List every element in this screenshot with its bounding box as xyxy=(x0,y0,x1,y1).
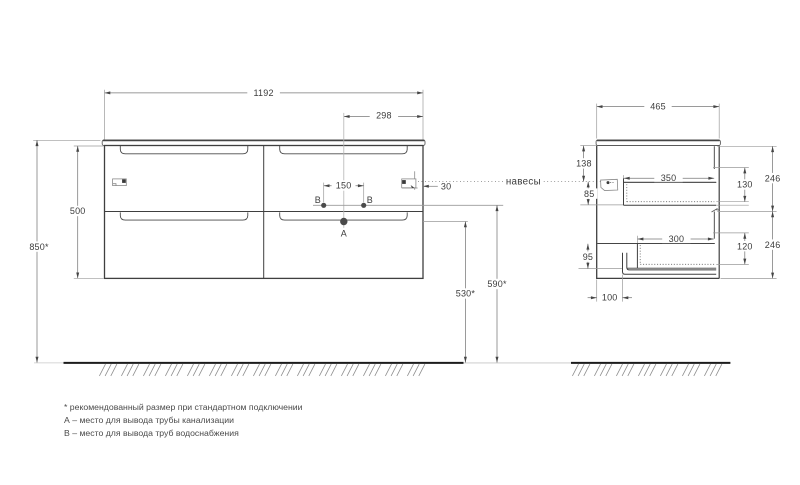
svg-text:A: A xyxy=(341,228,347,238)
svg-text:120: 120 xyxy=(737,241,753,251)
svg-text:130: 130 xyxy=(737,180,753,190)
svg-text:500: 500 xyxy=(70,206,86,216)
svg-text:350: 350 xyxy=(661,173,677,183)
svg-text:B: B xyxy=(367,195,373,205)
svg-text:* рекомендованный размер при с: * рекомендованный размер при стандартном… xyxy=(64,402,303,412)
svg-text:100: 100 xyxy=(602,293,618,303)
svg-text:138: 138 xyxy=(576,159,592,169)
svg-text:246: 246 xyxy=(765,240,781,250)
svg-text:530*: 530* xyxy=(456,289,476,299)
svg-text:95: 95 xyxy=(583,252,593,262)
svg-text:30: 30 xyxy=(441,181,451,191)
svg-text:300: 300 xyxy=(669,234,685,244)
svg-text:850*: 850* xyxy=(29,242,49,252)
svg-text:B: B xyxy=(315,195,321,205)
svg-text:298: 298 xyxy=(376,110,392,120)
svg-text:465: 465 xyxy=(650,102,666,112)
svg-text:А – место для вывода трубы кан: А – место для вывода трубы канализации xyxy=(64,415,234,425)
svg-text:1192: 1192 xyxy=(254,88,274,98)
svg-text:В – место для вывода труб водо: В – место для вывода труб водоснабжения xyxy=(64,428,239,438)
svg-text:246: 246 xyxy=(765,173,781,183)
svg-text:150: 150 xyxy=(336,181,352,191)
svg-text:навесы: навесы xyxy=(506,177,541,188)
svg-text:590*: 590* xyxy=(487,279,507,289)
svg-text:85: 85 xyxy=(584,189,594,199)
